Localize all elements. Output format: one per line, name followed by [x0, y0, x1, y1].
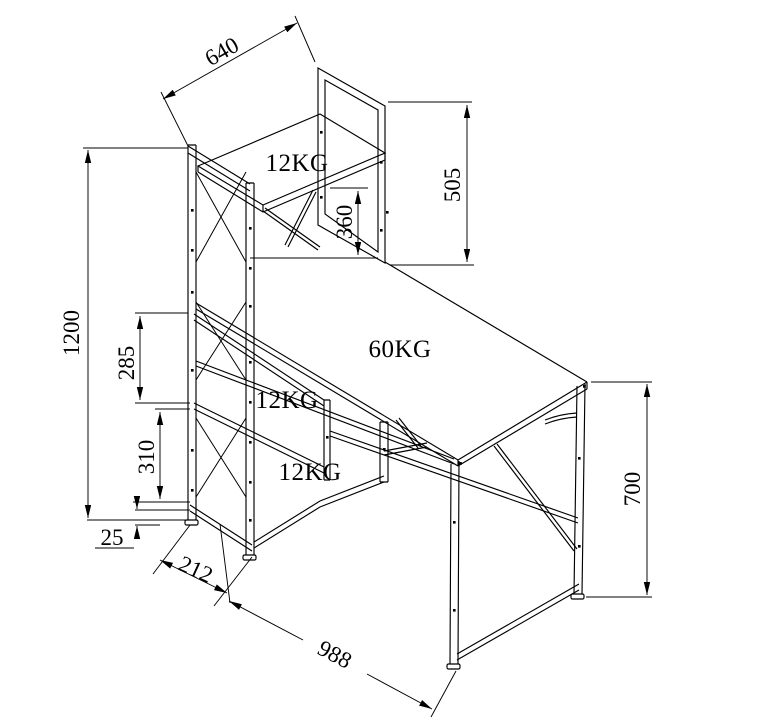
desktop-front-edge	[196, 303, 458, 466]
back-leg-gusset	[545, 413, 577, 424]
tower-front-post	[188, 145, 196, 520]
shelf-tower-frame	[185, 145, 256, 560]
tower-height-label: 1200	[59, 310, 84, 356]
lower-shelf-spacing-label: 310	[134, 440, 159, 475]
desktop-back-edge	[385, 262, 587, 382]
back-leg-foot	[571, 594, 584, 599]
desk-height-label: 700	[620, 472, 645, 507]
front-right-leg	[450, 461, 459, 664]
desk-dimension-diagram: 640 505 360 1200 285 310 25 212 988 700 …	[0, 0, 784, 724]
middle-shelf-load-label: 12KG	[255, 387, 318, 414]
bottom-shelf-front-edge	[254, 476, 384, 548]
desktop-right-edge	[458, 382, 587, 466]
top-shelf-braces	[263, 190, 320, 250]
top-shelf-load-label: 12KG	[265, 150, 328, 177]
bottom-shelf-load-label: 12KG	[278, 459, 341, 486]
under-desk-back-rail	[330, 431, 578, 523]
base-clearance-label: 25	[101, 525, 124, 550]
desk-width-label: 988	[314, 635, 356, 673]
under-desk-front-rail	[196, 361, 454, 464]
desk-leg-frame	[447, 384, 585, 669]
upper-shelf-spacing-label: 285	[114, 346, 139, 381]
hutch-height-label: 505	[440, 168, 465, 203]
desktop-clearance-label: 360	[332, 205, 357, 240]
tower-width-label: 212	[175, 551, 217, 588]
leg-bottom-rail	[457, 584, 579, 660]
bottom-shelf-left-edge	[190, 505, 252, 551]
shelf-length-label: 640	[201, 32, 243, 71]
dimension-upper-shelf-spacing	[135, 313, 190, 403]
back-right-leg	[574, 384, 585, 594]
tower-back-post	[246, 183, 254, 555]
desktop-load-label: 60KG	[368, 336, 431, 363]
tower-front-foot	[185, 520, 198, 525]
screw-dots	[191, 131, 586, 612]
tower-back-foot	[243, 555, 256, 560]
dimension-desk-width	[220, 524, 456, 717]
front-leg-foot	[447, 664, 460, 669]
technical-drawing-canvas: 640 505 360 1200 285 310 25 212 988 700 …	[0, 0, 784, 724]
